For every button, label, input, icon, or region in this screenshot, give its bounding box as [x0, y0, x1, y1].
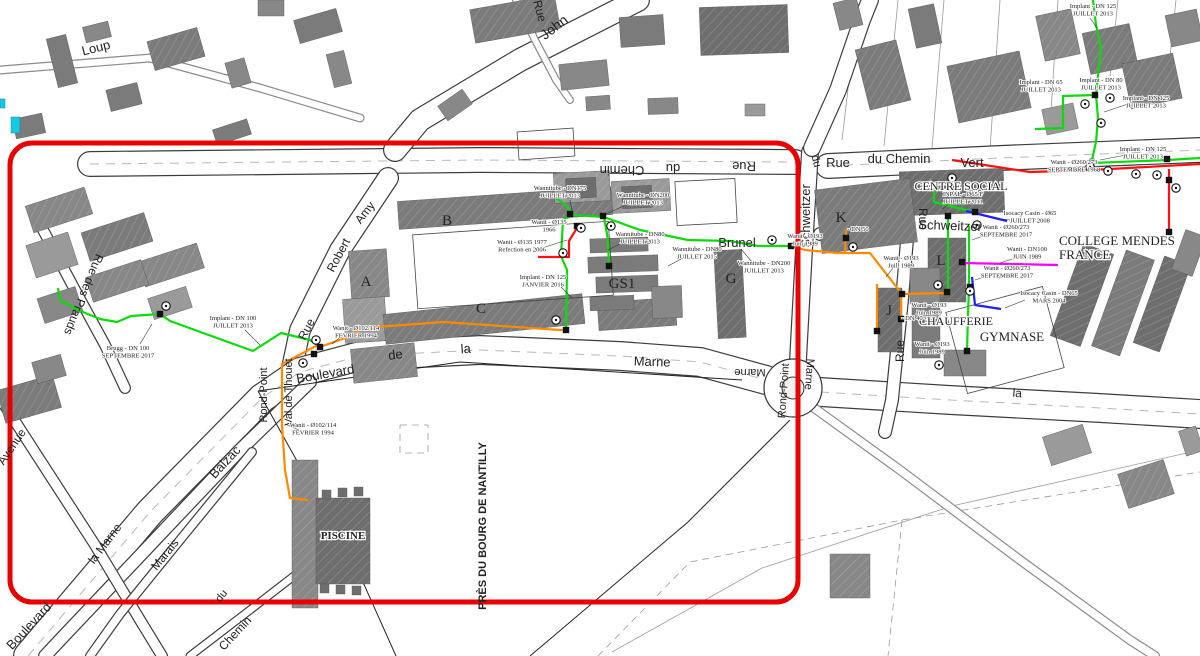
annotation-line1: Wannitube - DN200 — [617, 192, 670, 199]
annotation-line2: SEPTEMBRE 2017 — [980, 232, 1033, 239]
annotation-line1: Implant - DN 100 — [210, 315, 256, 322]
building — [699, 4, 789, 55]
annotation-line1: Implant - DN 125 — [520, 274, 566, 281]
cyan-feature — [11, 117, 20, 133]
rond-point-w-label: Rond-Point — [258, 367, 270, 422]
valve-dot-icon — [969, 290, 971, 292]
pres-du-bourg-label: PRÈS DU BOURG DE NANTILLY — [476, 442, 489, 610]
annotation-line2: FEVRIER 1994 — [292, 430, 334, 437]
annotation-line2: JUILLET 2013 — [1021, 87, 1061, 94]
annotation-line1: Isocacy Casin - DN65 — [1020, 290, 1078, 297]
annotation-line2: JUILLET 2013 — [620, 239, 660, 246]
building — [292, 460, 318, 608]
annotation-line1: Wanit - Ø260/273 — [1051, 159, 1098, 166]
annotation-line2: JUILLET 2013 — [1123, 154, 1163, 161]
valve-dot-icon — [1135, 173, 1137, 175]
valve-dot-icon — [580, 227, 582, 229]
building — [745, 104, 765, 116]
chemin-flipped-label: Chemin — [600, 163, 645, 178]
pipe-node-icon — [606, 263, 612, 269]
du-chemin-vert-label: du Chemin — [868, 151, 931, 166]
valve-dot-icon — [1175, 187, 1177, 189]
building — [590, 295, 634, 311]
building — [258, 0, 284, 16]
building — [651, 285, 682, 318]
schweitzer-h-label: Schweitzer — [918, 217, 983, 234]
pipe-node-icon — [311, 351, 317, 357]
building — [814, 178, 917, 253]
annotation-line2: JUILLET 2015 — [677, 254, 717, 261]
pipe-node-icon — [1164, 156, 1170, 162]
marne-label: Marne — [633, 353, 670, 369]
piscine-label: PISCINE — [321, 530, 366, 542]
annotation-line2: SEPTEMBRE 1968 — [1048, 167, 1100, 174]
du-flipped-label: du — [666, 161, 680, 176]
valve-dot-icon — [938, 364, 940, 366]
valve-dot-icon — [1100, 122, 1102, 124]
building-letter-label: GS1 — [609, 276, 636, 292]
annotation-line1: Implant - DN 125 — [1070, 3, 1116, 10]
annotation-line1: Wannitube - DN80 — [672, 246, 721, 253]
annotation-line1: Wannitube - DN80 — [615, 231, 664, 238]
building-letter-label: G — [726, 271, 737, 287]
annotation-line2: MARS 2004 — [1032, 298, 1066, 305]
building — [336, 585, 345, 594]
valve-dot-icon — [937, 284, 939, 286]
building-letter-label: L — [936, 253, 945, 269]
building — [648, 97, 679, 114]
valve-dot-icon — [852, 246, 854, 248]
building-letter-label: C — [476, 301, 486, 317]
building — [322, 490, 331, 499]
building — [559, 60, 609, 91]
valve-dot-icon — [1107, 170, 1109, 172]
annotation-line2: JUILLET 2013 — [540, 193, 580, 200]
annotation-line2: SEPTEMBRE 2017 — [102, 353, 155, 360]
college-mendes-label: COLLEGE MENDES — [1059, 233, 1175, 248]
pipe-node-icon — [567, 211, 573, 217]
annotation-line2: Juin 1989 — [916, 310, 941, 317]
vert-label: Vert — [960, 155, 984, 170]
building — [619, 15, 665, 48]
de-label: de — [387, 346, 403, 363]
la-east-label: la — [1012, 386, 1023, 401]
annotation-line2: JUILLET 2008 — [1010, 218, 1050, 225]
annotation-line1: Wanit - Ø193 — [914, 341, 949, 348]
building-letter-label: K — [836, 210, 847, 226]
val-de-thouet-label: Val de Thouet — [283, 358, 295, 425]
annotation-line2: 1966 — [543, 227, 557, 234]
annotation-line1: Wanit - Ø102/114 — [290, 422, 337, 429]
annotation-line2: JUIN 1989 — [1013, 254, 1042, 261]
college-france-label: FRANCE — [1059, 247, 1110, 262]
annotation-line1: Implant - DN 80 — [1079, 77, 1122, 84]
annotation-line1: Wanit - Ø193 — [787, 233, 822, 240]
valve-dot-icon — [771, 239, 773, 241]
pipe-node-icon — [964, 348, 970, 354]
valve-dot-icon — [555, 319, 557, 321]
annotation-line2: JANVIER 2016 — [522, 282, 564, 289]
pipe-node-icon — [600, 213, 606, 219]
valve-dot-icon — [302, 362, 304, 364]
valve-dot-icon — [1156, 174, 1158, 176]
pipe-node-icon — [972, 209, 978, 215]
annotation-line1: Wanit - Ø260/273 — [983, 224, 1030, 231]
building-letter-label: J — [886, 303, 892, 319]
building — [338, 488, 347, 497]
pipe-node-icon — [874, 328, 880, 334]
rue-vert-label: Rue — [826, 155, 850, 170]
annotation-line1: - DN 50 — [847, 226, 868, 233]
pipe-node-icon — [317, 344, 323, 350]
valve-dot-icon — [315, 339, 317, 341]
pipe-node-icon — [959, 259, 965, 265]
pipe-node-icon — [843, 235, 849, 241]
building — [830, 554, 870, 598]
building — [350, 343, 417, 384]
annotation-line2: Juin 1989 — [792, 241, 817, 248]
annotation-line1: Wanit - Ø102/114 — [333, 325, 380, 332]
pipe-node-icon — [944, 289, 950, 295]
marne-flipped-label: Marne — [734, 366, 765, 378]
annotation-line2: JUILLET 2013 — [1073, 11, 1113, 18]
valve-dot-icon — [610, 225, 612, 227]
annotation-line1: Wannitube - DN175 — [534, 185, 587, 192]
annotation-line1: Implant - DN 65 — [1019, 79, 1062, 86]
cyan-feature — [0, 99, 5, 108]
annotation-line1: Wanit - DN100 — [1007, 246, 1047, 253]
annotation-line2: Juill 1989 — [888, 263, 914, 270]
valve-dot-icon — [562, 252, 564, 254]
network-plan-map[interactable]: LoupRueJohnCheminduRueduRuedu CheminVert… — [0, 0, 1200, 656]
annotation-line1: Isocacy Casin - Ø65 — [1004, 210, 1057, 217]
building-letter-label: B — [442, 213, 452, 229]
annotation-line2: SEPTEMBRE 2017 — [981, 273, 1034, 280]
pipe-node-icon — [563, 327, 569, 333]
building-letter-label: A — [361, 274, 372, 290]
annotation-line2: FEVRIER 1994 — [335, 333, 377, 340]
pipe-node-icon — [1092, 92, 1098, 98]
annotation-line1: Implant - DN 125 — [1120, 146, 1166, 153]
la-mid-label: la — [460, 341, 472, 357]
annotation-line1: Wanit - Ø193 — [883, 255, 918, 262]
annotation-line1: Wanit - Ø193 — [911, 302, 946, 309]
building — [1165, 9, 1200, 47]
pipe-node-icon — [157, 311, 163, 317]
annotation-line1: Brugg - DN 100 — [107, 345, 149, 352]
annotation-line1: INPAL - Ø65/F — [943, 191, 984, 198]
building — [320, 584, 329, 593]
annotation-line1: Wanit - Ø260/273 — [984, 265, 1031, 272]
pipe-orange — [845, 230, 846, 253]
pipe-node-icon — [1166, 177, 1172, 183]
rue-flipped-label: Rue — [732, 159, 756, 174]
valve-dot-icon — [1084, 103, 1086, 105]
annotation-line1: Wanit - Ø135 1977 — [497, 239, 548, 246]
annotation-line2: JUILLET 2013 — [623, 200, 663, 207]
building — [586, 95, 611, 111]
annotation-line1: Implant - DN 125 — [1123, 95, 1169, 102]
annotation-line2: JUILLET 2013 — [744, 268, 784, 275]
annotation-line1: Wanit - Ø135 — [531, 219, 566, 226]
valve-dot-icon — [1109, 97, 1111, 99]
annotation-line2: JUILLET 2011 — [943, 199, 983, 206]
annotation-line2: Refection en 2006 — [498, 247, 546, 254]
rue-schweitzer-s-label: Rue — [893, 340, 907, 362]
building — [352, 586, 361, 595]
brunel-label: Brunel — [718, 235, 756, 250]
annotation-line2: JUILLET 2013 — [1081, 85, 1121, 92]
building — [588, 255, 659, 273]
valve-dot-icon — [165, 305, 167, 307]
pipe-node-icon — [899, 291, 905, 297]
gymnase-label: GYMNASE — [980, 329, 1044, 344]
annotation-line2: JUILLET 2013 — [213, 323, 253, 330]
annotation-line1: Wannitube - DN200 — [738, 260, 791, 267]
marne-vert-label: Marne — [802, 358, 816, 390]
building — [354, 487, 363, 496]
annotation-line2: JUILLET 2013 — [1126, 103, 1166, 110]
annotation-line2: Juin 1989 — [919, 349, 944, 356]
